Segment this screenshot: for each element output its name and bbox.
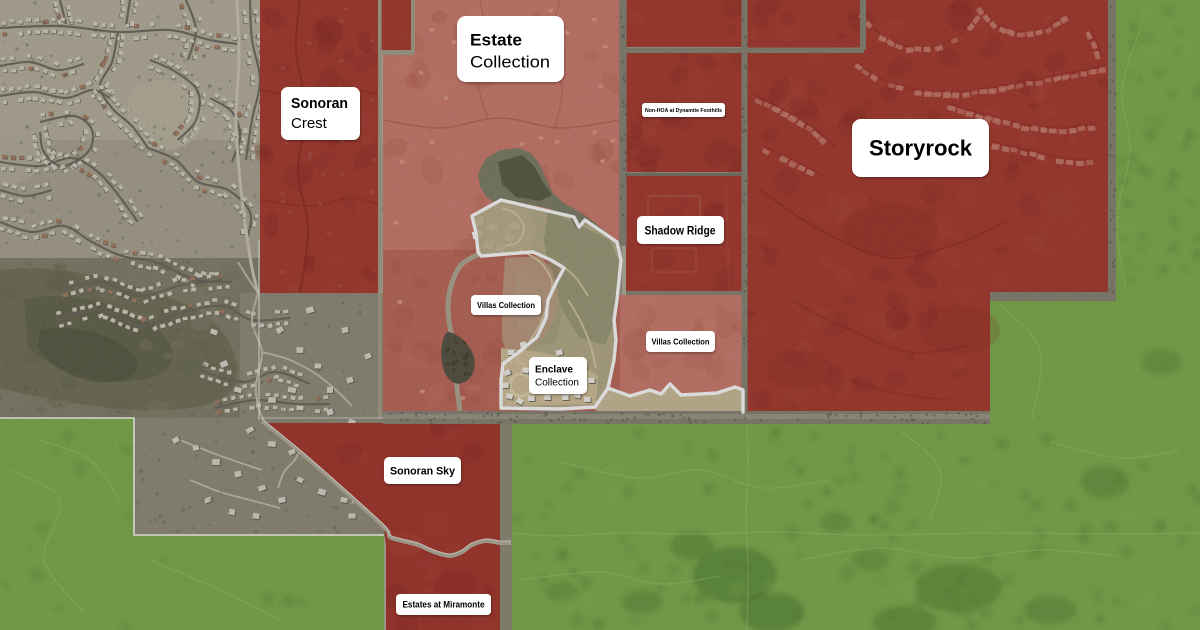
svg-text:Collection: Collection bbox=[535, 378, 579, 389]
svg-text:Collection: Collection bbox=[470, 54, 550, 72]
svg-text:Estates at Miramonte: Estates at Miramonte bbox=[403, 600, 485, 610]
svg-text:Crest: Crest bbox=[291, 115, 328, 132]
svg-text:Villas Collection: Villas Collection bbox=[477, 301, 535, 310]
svg-text:Storyrock: Storyrock bbox=[869, 136, 972, 161]
svg-text:Shadow Ridge: Shadow Ridge bbox=[645, 225, 716, 238]
svg-text:Sonoran: Sonoran bbox=[291, 95, 348, 112]
svg-text:Enclave: Enclave bbox=[535, 365, 574, 376]
svg-text:Estate: Estate bbox=[470, 32, 522, 50]
svg-text:Sonoran Sky: Sonoran Sky bbox=[390, 466, 456, 478]
svg-text:Villas Collection: Villas Collection bbox=[652, 338, 710, 347]
svg-text:Non-HOA at Dynamite Foothills: Non-HOA at Dynamite Foothills bbox=[645, 108, 722, 114]
